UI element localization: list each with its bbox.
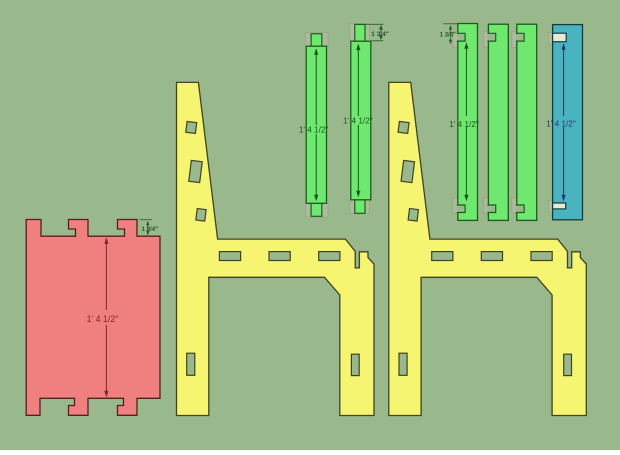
svg-text:1' 4 1/2": 1' 4 1/2" bbox=[299, 125, 329, 134]
svg-text:1 3/4": 1 3/4" bbox=[440, 33, 456, 39]
svg-text:1 3/4": 1 3/4" bbox=[371, 31, 389, 38]
svg-text:1' 4 1/2": 1' 4 1/2" bbox=[343, 116, 373, 125]
svg-text:1' 4 1/2": 1' 4 1/2" bbox=[546, 120, 576, 129]
svg-text:1' 4 1/2": 1' 4 1/2" bbox=[87, 314, 119, 324]
svg-text:1' 4 1/2": 1' 4 1/2" bbox=[449, 120, 479, 129]
svg-text:1 3/4": 1 3/4" bbox=[141, 226, 158, 233]
